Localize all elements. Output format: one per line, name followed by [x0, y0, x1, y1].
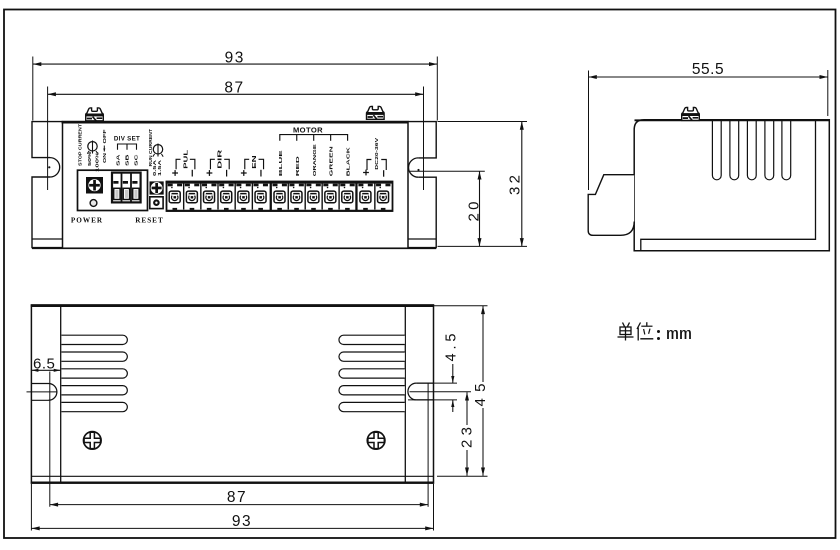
svg-text:1.5A: 1.5A [157, 159, 162, 176]
svg-text:RESET: RESET [135, 216, 164, 224]
svg-text:93: 93 [232, 513, 252, 530]
svg-text:mm: mm [666, 325, 692, 344]
svg-text:87: 87 [227, 489, 247, 506]
svg-text:50%: 50% [87, 152, 92, 167]
svg-text:100%: 100% [94, 152, 99, 172]
svg-text:PUL: PUL [183, 150, 189, 169]
svg-text:DIV SET: DIV SET [114, 136, 140, 143]
svg-text:BLACK: BLACK [346, 147, 352, 177]
svg-text:93: 93 [225, 49, 245, 66]
svg-text:DIR: DIR [218, 149, 224, 169]
svg-text:ON: ON [102, 152, 107, 163]
svg-text:SC: SC [134, 154, 140, 166]
svg-text:BLUE: BLUE [278, 149, 284, 176]
svg-text:DC20-36V: DC20-36V [374, 137, 380, 170]
svg-text:SB: SB [125, 154, 131, 166]
svg-text:4.5: 4.5 [444, 334, 460, 362]
svg-text:GREEN: GREEN [329, 146, 335, 177]
svg-text:RED: RED [295, 155, 301, 176]
svg-text:POWER: POWER [71, 216, 103, 224]
svg-text:MOTOR: MOTOR [293, 126, 323, 135]
svg-text:SA: SA [116, 154, 122, 166]
svg-text:87: 87 [224, 80, 244, 97]
svg-text:55.5: 55.5 [692, 61, 724, 78]
svg-text:ORANGE: ORANGE [312, 143, 318, 176]
svg-text:EN: EN [252, 155, 258, 169]
svg-text:STOP CURRENT: STOP CURRENT [78, 124, 83, 166]
svg-text:OFF: OFF [102, 129, 107, 143]
